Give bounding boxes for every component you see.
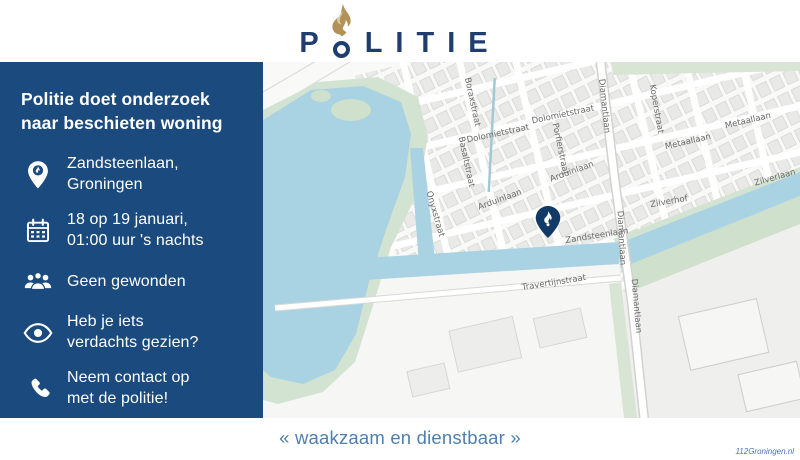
street-label-diamantlaan: Diamantlaan: [615, 211, 628, 266]
panel-item-text: Geen gewonden: [67, 272, 186, 293]
location-pin-icon: [21, 159, 54, 192]
panel-item-location-pin: Zandsteenlaan,Groningen: [21, 154, 245, 196]
panel-item-people: Geen gewonden: [21, 265, 245, 298]
panel-item-text: Neem contact opmet de politie!: [67, 368, 189, 410]
map-canvas[interactable]: BoraxstraatDolomietstraatDolomietstraatB…: [263, 62, 800, 418]
street-label-zilverhof: Zilverhof: [650, 194, 689, 210]
panel-item-line: 01:00 uur 's nachts: [67, 231, 204, 252]
panel-item-line: Groningen: [67, 175, 179, 196]
panel-item-phone: Neem contact opmet de politie!: [21, 368, 245, 410]
panel-item-line: 18 op 19 januari,: [67, 210, 204, 231]
announcement-title: Politie doet onderzoek naar beschieten w…: [21, 88, 245, 135]
street-label-onyxstraat: Onyxstraat: [424, 190, 447, 238]
panel-item-line: Zandsteenlaan,: [67, 154, 179, 175]
street-label-dolomietstraat: Dolomietstraat: [531, 104, 595, 127]
panel-item-line: Neem contact op: [67, 368, 189, 389]
politie-logo: P LITIE: [0, 0, 800, 62]
street-label-arduinlaan: Arduinlaan: [477, 187, 524, 212]
panel-item-text: Zandsteenlaan,Groningen: [67, 154, 179, 196]
street-label-metaallaan: Metaallaan: [724, 111, 772, 131]
street-label-koperstraat: Koperstraat: [647, 84, 665, 134]
panel-item-line: Geen gewonden: [67, 272, 186, 293]
eye-icon: [21, 317, 54, 350]
panel-item-line: verdachts gezien?: [67, 333, 199, 354]
panel-item-eye: Heb je ietsverdachts gezien?: [21, 312, 245, 354]
panel-item-line: met de politie!: [67, 389, 189, 410]
panel-item-text: Heb je ietsverdachts gezien?: [67, 312, 199, 354]
street-label-diamantlaan: Diamantlaan: [596, 78, 612, 133]
street-label-zilverlaan: Zilverlaan: [753, 167, 797, 188]
logo-letter-p: P: [299, 29, 318, 58]
politie-pin-icon[interactable]: [536, 206, 561, 243]
street-label-boraxstraat: Boraxstraat: [462, 77, 482, 128]
street-labels-layer: BoraxstraatDolomietstraatDolomietstraatB…: [263, 62, 800, 418]
panel-item-calendar: 18 op 19 januari,01:00 uur 's nachts: [21, 210, 245, 252]
politie-slogan: « waakzaam en dienstbaar »: [0, 427, 800, 449]
logo-letter-o: [333, 41, 350, 58]
street-label-arduinlaan: Arduinlaan: [549, 159, 596, 184]
info-panel: Politie doet onderzoek naar beschieten w…: [0, 62, 263, 418]
phone-icon: [21, 372, 54, 405]
street-label-travertijnstraat: Travertijnstraat: [521, 273, 587, 293]
logo-letters-litie: LITIE: [365, 29, 501, 58]
street-label-diamantlaan: Diamantlaan: [629, 278, 644, 333]
police-announcement-poster: P LITIE Politie doet onderzoek naar besc…: [0, 0, 800, 460]
footer: « waakzaam en dienstbaar » 112Groningen.…: [0, 418, 800, 460]
panel-item-line: Heb je iets: [67, 312, 199, 333]
panel-item-text: 18 op 19 januari,01:00 uur 's nachts: [67, 210, 204, 252]
people-icon: [21, 265, 54, 298]
announcement-items: Zandsteenlaan,Groningen18 op 19 januari,…: [21, 154, 245, 409]
credit-watermark: 112Groningen.nl: [735, 447, 794, 456]
calendar-icon: [21, 214, 54, 247]
politie-flame-icon: [329, 4, 355, 58]
street-label-metaallaan: Metaallaan: [664, 132, 712, 152]
